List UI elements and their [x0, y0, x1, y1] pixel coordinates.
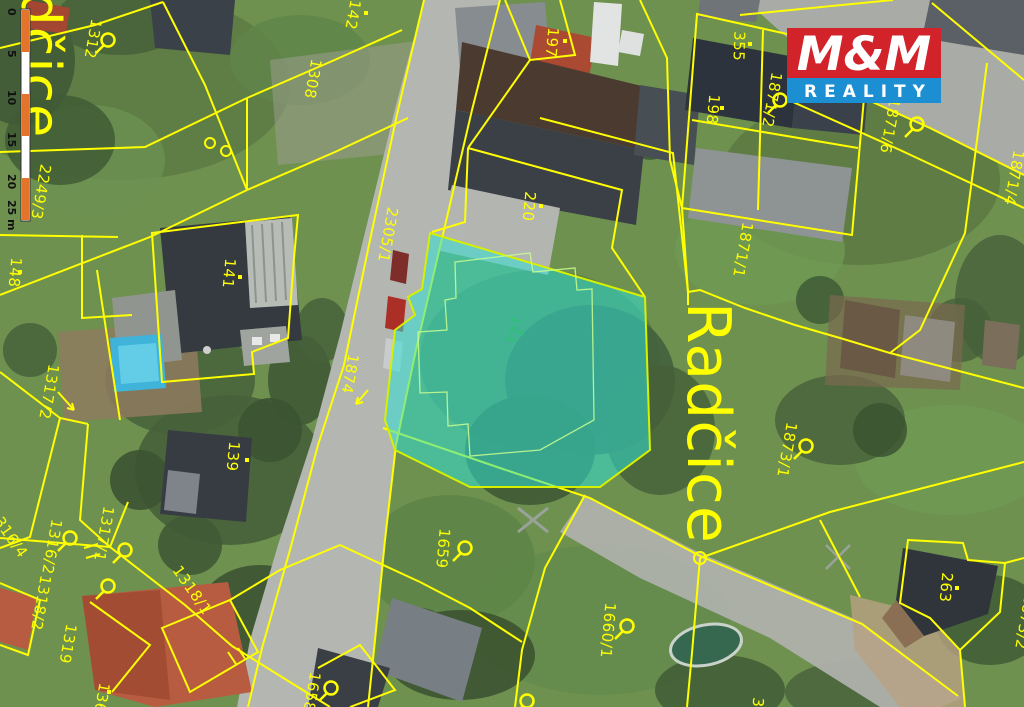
parcel-label-1659: 1659 — [432, 528, 453, 570]
logo-mm-text: M&M — [797, 27, 932, 82]
shed — [840, 300, 900, 378]
parcel-label-148: 148 — [5, 257, 26, 289]
scale-tick-20: 20 — [5, 174, 18, 190]
swimming-pool-water — [118, 343, 159, 384]
shed — [982, 320, 1020, 370]
parcel-label-3: 3 — [749, 697, 768, 707]
building-roof — [150, 0, 235, 55]
house-139-light-part — [164, 470, 200, 514]
white-car — [618, 30, 644, 56]
parcel-label-263: 263 — [936, 572, 957, 604]
scale-tick-25m: 25 m — [5, 200, 18, 231]
scale-tick-5: 5 — [5, 50, 18, 58]
scale-tick-15: 15 — [5, 132, 18, 147]
parcel-label-220: 220 — [519, 191, 540, 223]
mm-reality-logo: M&M REALITY — [787, 27, 941, 103]
logo-reality-text: REALITY — [804, 82, 932, 102]
place-name-radcice-main: Radčice — [673, 302, 743, 544]
parcel-label-197: 197 — [542, 27, 563, 59]
cadastral-map: 1312 142 1308 197 355 198 1871/2 1871/6 … — [0, 0, 1024, 707]
scale-tick-0: 0 — [5, 8, 18, 16]
parcel-label-355: 355 — [729, 31, 748, 62]
parcel-label-198: 198 — [703, 94, 724, 126]
scale-tick-10: 10 — [5, 90, 18, 106]
parcel-label-139: 139 — [223, 441, 244, 473]
place-name-radcice-left: Radčice — [9, 0, 72, 138]
white-van — [590, 2, 622, 66]
woodpile — [900, 315, 955, 382]
parcel-label-141: 141 — [219, 258, 240, 290]
